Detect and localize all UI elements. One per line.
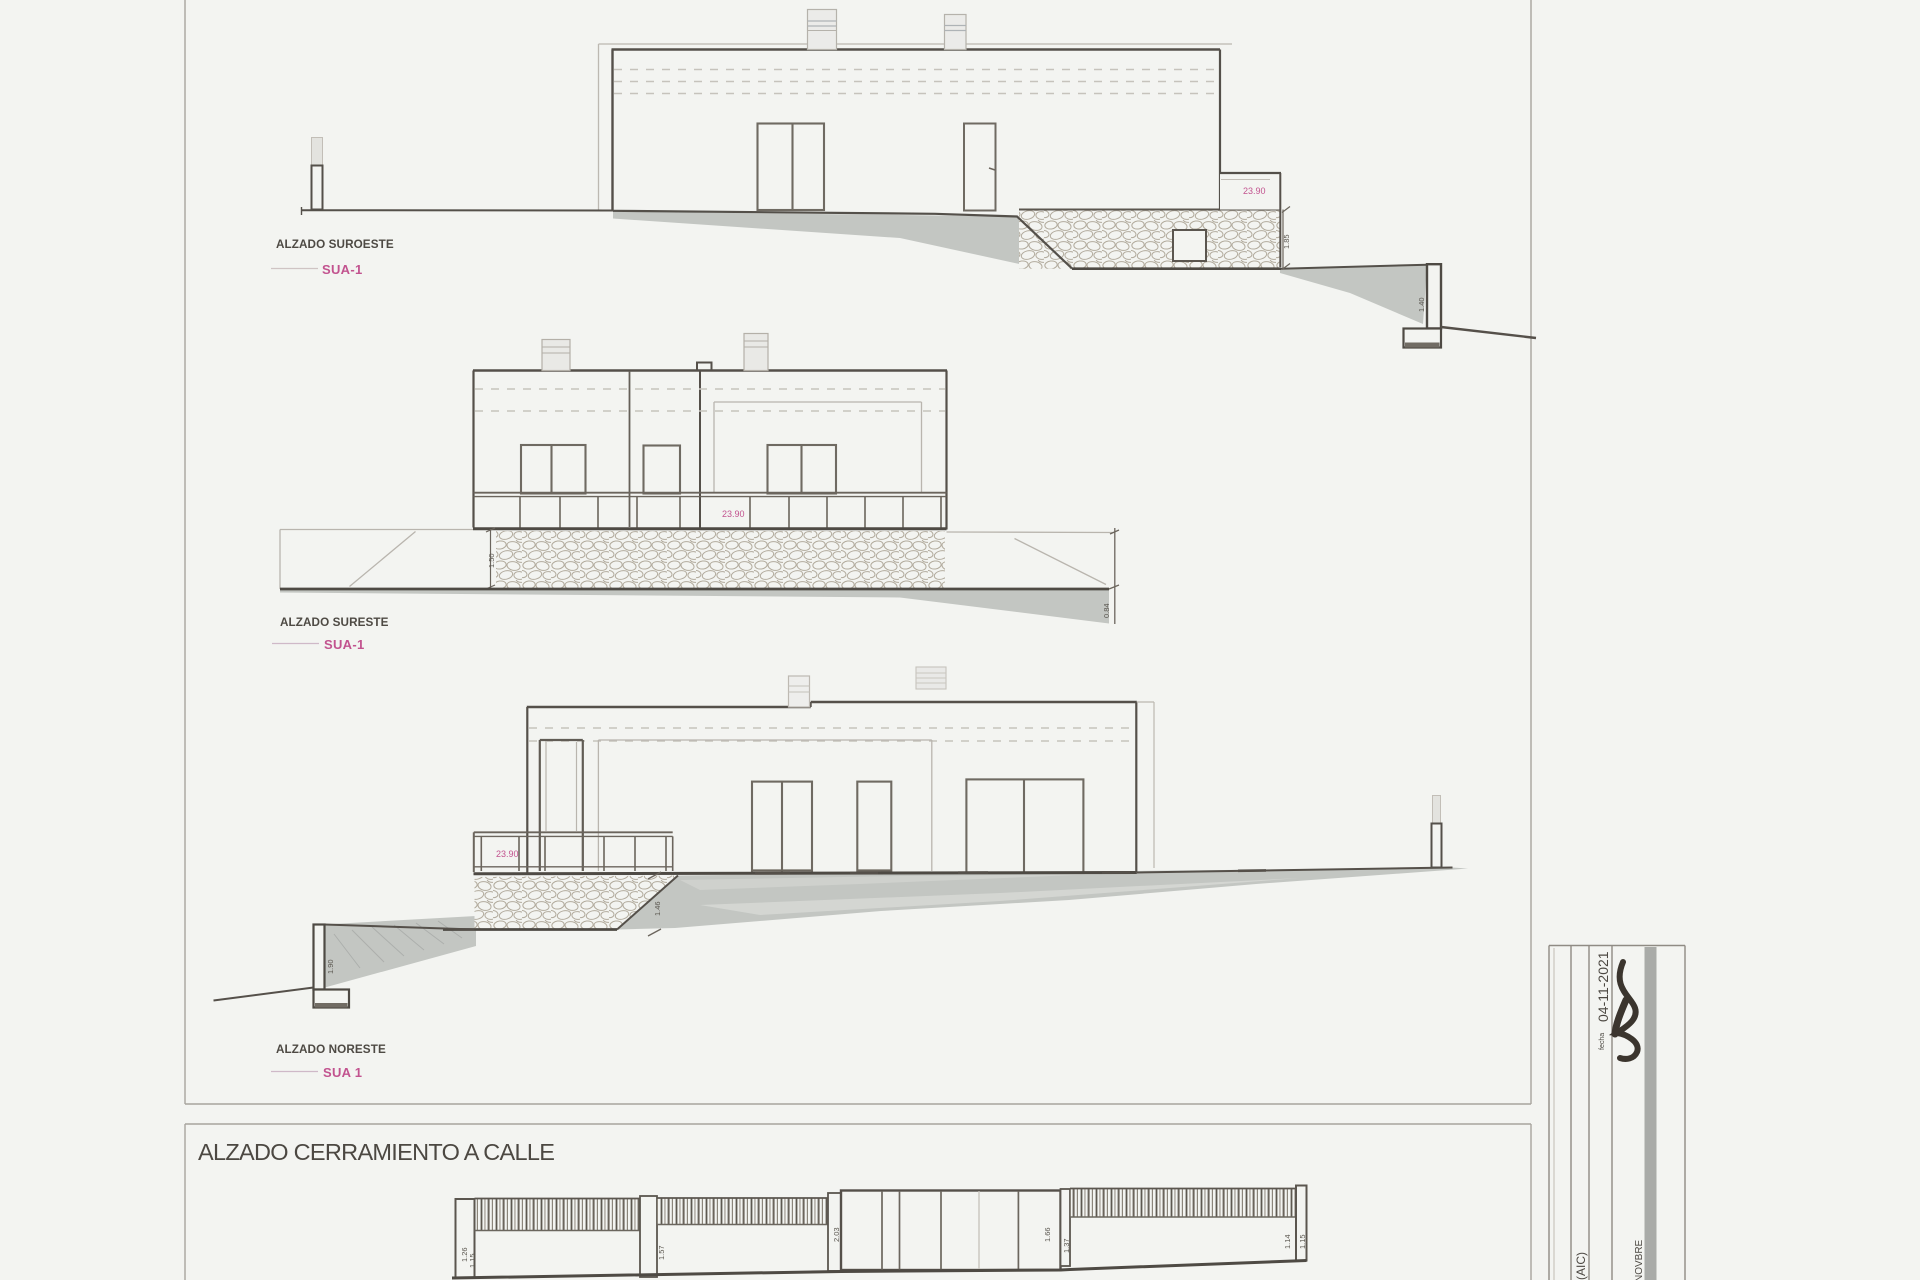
svg-text:ALZADO SURESTE: ALZADO SURESTE (280, 616, 389, 629)
svg-text:NOVBRE: NOVBRE (1634, 1239, 1645, 1280)
svg-text:1.15: 1.15 (468, 1253, 477, 1268)
svg-text:1.90: 1.90 (326, 959, 335, 974)
svg-text:SUA-1: SUA-1 (322, 262, 363, 277)
svg-text:1.66: 1.66 (1043, 1227, 1052, 1242)
svg-text:1.15: 1.15 (1298, 1234, 1307, 1249)
svg-text:(AIC): (AIC) (1574, 1252, 1588, 1280)
svg-text:1.46: 1.46 (653, 901, 662, 916)
svg-text:0.84: 0.84 (1102, 603, 1111, 618)
svg-text:1.50: 1.50 (487, 553, 496, 568)
svg-text:SUA-1: SUA-1 (324, 637, 365, 652)
svg-text:23.90: 23.90 (496, 849, 519, 859)
svg-text:04-11-2021: 04-11-2021 (1595, 951, 1611, 1022)
svg-text:SUA 1: SUA 1 (323, 1065, 362, 1080)
svg-text:23.90: 23.90 (1243, 186, 1266, 196)
svg-text:ALZADO NORESTE: ALZADO NORESTE (276, 1043, 386, 1056)
svg-text:2.03: 2.03 (832, 1227, 841, 1242)
svg-text:1.85: 1.85 (1282, 234, 1291, 249)
svg-text:1.40: 1.40 (1417, 297, 1426, 312)
svg-text:1.37: 1.37 (1062, 1238, 1071, 1253)
svg-text:1.57: 1.57 (657, 1245, 666, 1260)
svg-text:ALZADO SUROESTE: ALZADO SUROESTE (276, 238, 394, 251)
svg-text:fecha: fecha (1599, 1033, 1606, 1050)
svg-text:1.14: 1.14 (1283, 1234, 1292, 1249)
svg-text:ALZADO CERRAMIENTO A CALLE: ALZADO CERRAMIENTO A CALLE (198, 1139, 554, 1165)
svg-text:23.90: 23.90 (722, 509, 745, 519)
